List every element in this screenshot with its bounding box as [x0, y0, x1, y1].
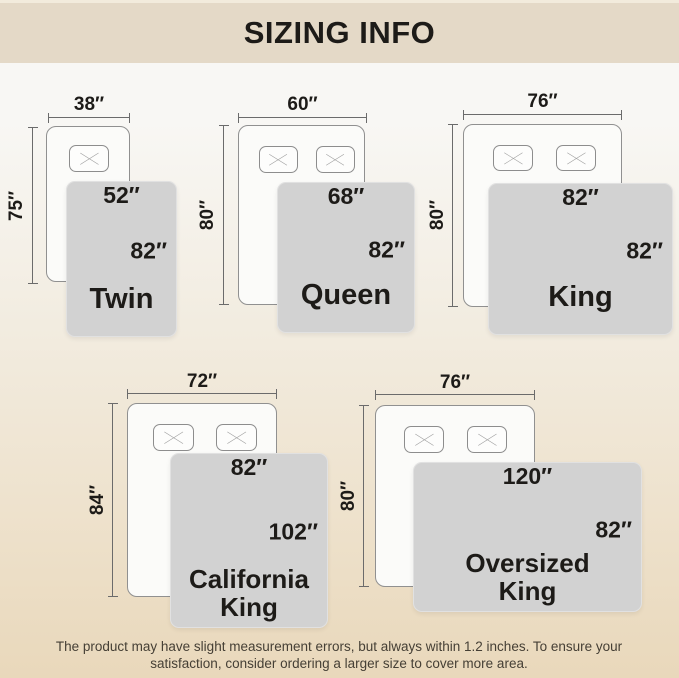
blanket-overlay: 120″ 82″ Oversized King [413, 462, 642, 612]
length-dimension-line [223, 125, 224, 305]
blanket-overlay: 82″ 82″ King [488, 183, 673, 335]
width-dimension-label: 76″ [463, 91, 622, 113]
length-dimension-label: 80″ [338, 474, 360, 518]
width-dimension-line [375, 394, 535, 395]
pillow-x-icon [267, 152, 289, 168]
blanket-width-label: 68″ [277, 183, 415, 210]
size-name-label: California King [170, 565, 328, 621]
pillow-x-icon [476, 432, 499, 448]
blanket-length-label: 82″ [626, 238, 663, 265]
length-dimension-line [363, 405, 364, 587]
width-dimension-label: 60″ [238, 94, 367, 116]
width-dimension-label: 72″ [127, 371, 277, 393]
pillow [69, 145, 109, 172]
sizing-info-infographic: SIZING INFO 38″ 75″ 52″ 82″ Twin 60″ 80″ [0, 0, 679, 678]
blanket-width-label: 82″ [170, 454, 328, 481]
length-dimension-line [452, 124, 453, 307]
blanket-width-label: 82″ [488, 184, 673, 211]
pillow-x-icon [225, 430, 248, 446]
pillow [216, 424, 257, 451]
blanket-length-label: 82″ [595, 516, 632, 543]
blanket-overlay: 52″ 82″ Twin [66, 181, 177, 337]
length-dimension-line [32, 127, 33, 284]
page-title: SIZING INFO [244, 15, 436, 51]
pillow [404, 426, 444, 453]
width-dimension-line [463, 114, 622, 115]
length-dimension-label: 75″ [6, 184, 28, 228]
pillow [556, 145, 596, 171]
footer-note: The product may have slight measurement … [39, 638, 639, 672]
length-dimension-line [112, 403, 113, 597]
header-bar: SIZING INFO [0, 0, 679, 63]
pillow [153, 424, 194, 451]
length-dimension-label: 80″ [197, 193, 219, 237]
pillow [316, 146, 355, 173]
pillow-x-icon [162, 430, 185, 446]
blanket-overlay: 82″ 102″ California King [170, 453, 328, 628]
length-dimension-label: 84″ [87, 478, 109, 522]
width-dimension-line [48, 117, 130, 118]
blanket-length-label: 82″ [368, 236, 405, 263]
size-name-label: Oversized King [413, 549, 642, 605]
pillow [467, 426, 507, 453]
blanket-overlay: 68″ 82″ Queen [277, 182, 415, 333]
pillow-x-icon [413, 432, 436, 448]
length-dimension-label: 80″ [427, 193, 449, 237]
pillow [259, 146, 298, 173]
width-dimension-line [238, 117, 367, 118]
size-name-label: Queen [277, 280, 415, 311]
width-dimension-label: 38″ [48, 94, 130, 116]
pillow-x-icon [502, 151, 525, 166]
blanket-width-label: 120″ [413, 463, 642, 490]
pillow-x-icon [78, 151, 101, 167]
pillow [493, 145, 533, 171]
width-dimension-label: 76″ [375, 372, 535, 394]
blanket-width-label: 52″ [66, 182, 177, 209]
pillow-x-icon [324, 152, 346, 168]
pillow-x-icon [565, 151, 588, 166]
width-dimension-line [127, 393, 277, 394]
blanket-length-label: 102″ [269, 518, 318, 545]
size-name-label: Twin [66, 284, 177, 315]
blanket-length-label: 82″ [130, 238, 167, 265]
size-name-label: King [488, 282, 673, 313]
